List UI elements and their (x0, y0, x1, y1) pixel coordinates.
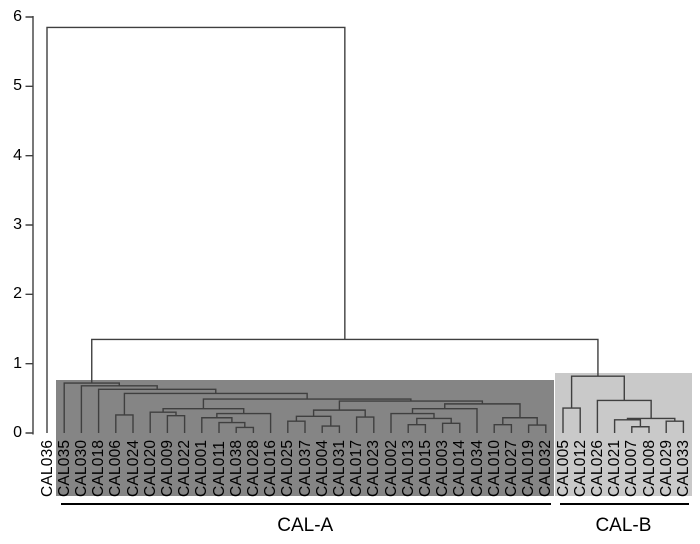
dendrogram-figure: 0123456 CAL036CAL035CAL030CAL018CAL006CA… (0, 0, 700, 544)
leaf-label: CAL021 (608, 438, 621, 497)
leaf-label: CAL010 (488, 438, 501, 497)
leaf-label: CAL012 (574, 438, 587, 497)
leaf-label: CAL034 (471, 438, 484, 497)
leaf-label: CAL013 (402, 438, 415, 497)
leaf-label: CAL018 (92, 438, 105, 497)
leaf-label: CAL015 (419, 438, 432, 497)
leaf-label: CAL007 (625, 438, 638, 497)
leaf-label: CAL026 (591, 438, 604, 497)
y-tick-label: 5 (0, 77, 22, 95)
leaf-label: CAL004 (316, 438, 329, 497)
leaf-label: CAL037 (299, 438, 312, 497)
y-axis (26, 16, 34, 435)
leaf-label: CAL023 (367, 438, 380, 497)
leaf-label: CAL003 (436, 438, 449, 497)
group-label-cal-b: CAL-B (563, 515, 683, 537)
y-tick-label: 2 (0, 285, 22, 303)
leaf-label: CAL017 (350, 438, 363, 497)
leaf-label: CAL035 (58, 438, 71, 497)
leaf-label: CAL016 (264, 438, 277, 497)
leaf-label: CAL036 (41, 438, 54, 497)
group-rule-cal-a (61, 503, 551, 505)
leaf-label: CAL032 (539, 438, 552, 497)
leaf-label: CAL019 (522, 438, 535, 497)
y-tick-label: 0 (0, 424, 22, 442)
leaf-label: CAL028 (247, 438, 260, 497)
leaf-label: CAL011 (213, 438, 226, 497)
leaf-label: CAL001 (195, 438, 208, 497)
leaf-label: CAL009 (161, 438, 174, 497)
leaf-label: CAL027 (505, 438, 518, 497)
group-label-cal-a: CAL-A (245, 515, 365, 537)
y-tick-label: 1 (0, 355, 22, 373)
leaf-label: CAL025 (281, 438, 294, 497)
y-tick-label: 6 (0, 8, 22, 26)
leaf-label: CAL024 (127, 438, 140, 497)
tree-branches (47, 27, 683, 433)
group-rule-cal-b (560, 503, 689, 505)
y-tick-label: 3 (0, 216, 22, 234)
leaf-label: CAL014 (453, 438, 466, 497)
leaf-label: CAL031 (333, 438, 346, 497)
leaf-label: CAL038 (230, 438, 243, 497)
leaf-label: CAL029 (660, 438, 673, 497)
leaf-label: CAL005 (557, 438, 570, 497)
y-tick-label: 4 (0, 147, 22, 165)
leaf-label: CAL033 (677, 438, 690, 497)
leaf-label: CAL030 (75, 438, 88, 497)
leaf-label: CAL022 (178, 438, 191, 497)
leaf-label: CAL020 (144, 438, 157, 497)
leaf-label: CAL006 (109, 438, 122, 497)
leaf-label: CAL008 (643, 438, 656, 497)
leaf-label: CAL002 (385, 438, 398, 497)
